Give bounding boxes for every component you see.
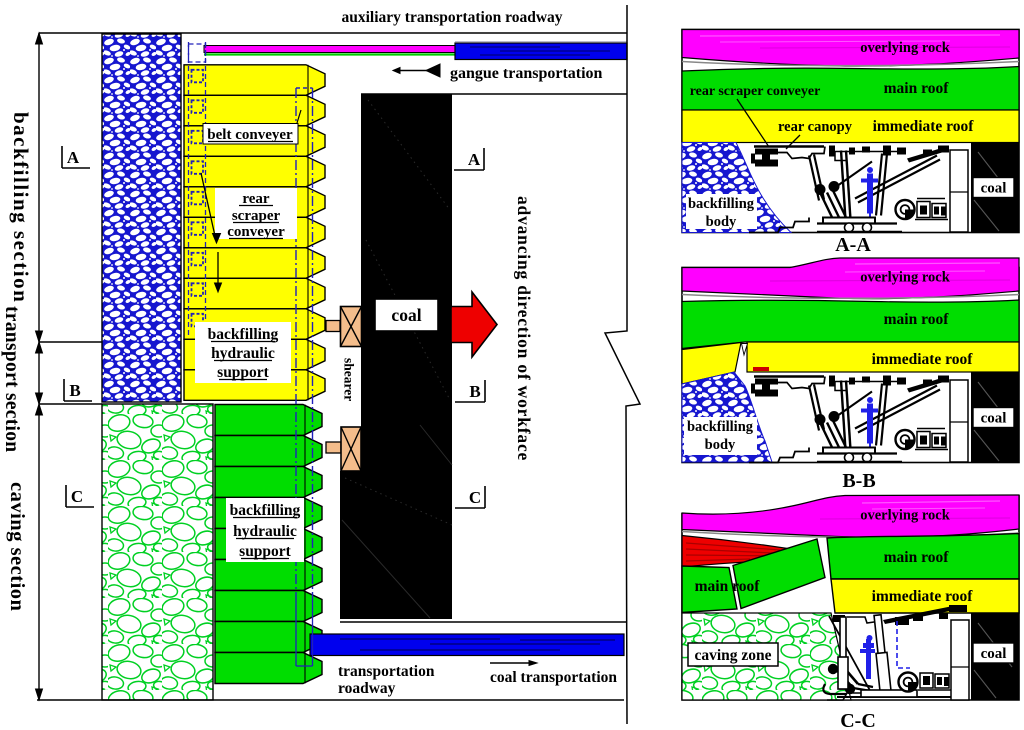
svg-text:caving zone: caving zone [694, 647, 771, 664]
svg-text:overlying rock: overlying rock [860, 40, 950, 56]
svg-text:rear canopy: rear canopy [778, 119, 853, 135]
svg-text:B: B [469, 382, 480, 401]
svg-text:body: body [705, 437, 736, 453]
svg-text:coal: coal [981, 646, 1007, 662]
svg-text:support: support [217, 364, 270, 381]
svg-text:A-A: A-A [835, 234, 871, 256]
svg-text:coal: coal [981, 181, 1007, 197]
svg-text:B-B: B-B [842, 470, 875, 492]
svg-text:main roof: main roof [695, 578, 761, 595]
svg-text:transport section: transport section [1, 306, 22, 452]
svg-text:main roof: main roof [884, 311, 950, 328]
svg-text:A: A [468, 150, 481, 169]
svg-text:auxiliary transportation roadw: auxiliary transportation roadway [341, 9, 562, 26]
svg-text:shearer: shearer [342, 358, 357, 401]
svg-text:B: B [69, 381, 80, 400]
svg-text:immediate roof: immediate roof [873, 118, 975, 135]
svg-text:rear scraper conveyer: rear scraper conveyer [690, 84, 821, 99]
svg-text:hydraulic: hydraulic [233, 523, 297, 540]
svg-text:coal: coal [981, 411, 1007, 427]
svg-text:C-C: C-C [840, 710, 876, 730]
svg-text:transportation: transportation [338, 663, 435, 680]
svg-text:belt conveyer: belt conveyer [207, 127, 293, 143]
svg-text:backfilling: backfilling [688, 196, 755, 212]
svg-text:advancing direction of workfac: advancing direction of workface [514, 196, 534, 461]
svg-text:conveyer: conveyer [227, 224, 285, 240]
svg-text:support: support [239, 543, 292, 560]
svg-text:scraper: scraper [232, 208, 281, 224]
svg-text:gangue transportation: gangue transportation [450, 65, 603, 82]
svg-text:caving section: caving section [6, 482, 28, 612]
svg-text:main roof: main roof [884, 549, 950, 566]
svg-text:roadway: roadway [338, 680, 396, 697]
svg-text:C: C [71, 487, 83, 506]
svg-text:coal transportation: coal transportation [490, 669, 617, 686]
svg-text:C: C [469, 488, 481, 507]
svg-text:immediate roof: immediate roof [872, 351, 974, 368]
svg-text:overlying rock: overlying rock [860, 508, 950, 524]
svg-text:overlying rock: overlying rock [860, 270, 950, 286]
svg-text:immediate roof: immediate roof [872, 588, 974, 605]
svg-text:body: body [706, 214, 737, 230]
svg-text:backfilling: backfilling [208, 326, 279, 343]
svg-text:backfilling: backfilling [687, 419, 754, 435]
svg-text:rear: rear [242, 191, 270, 207]
svg-text:backfilling: backfilling [230, 502, 301, 519]
svg-text:backfilling section: backfilling section [9, 112, 33, 303]
svg-text:A: A [67, 148, 80, 167]
svg-text:hydraulic: hydraulic [211, 345, 275, 362]
svg-text:coal: coal [391, 305, 421, 325]
svg-text:main roof: main roof [884, 80, 950, 97]
